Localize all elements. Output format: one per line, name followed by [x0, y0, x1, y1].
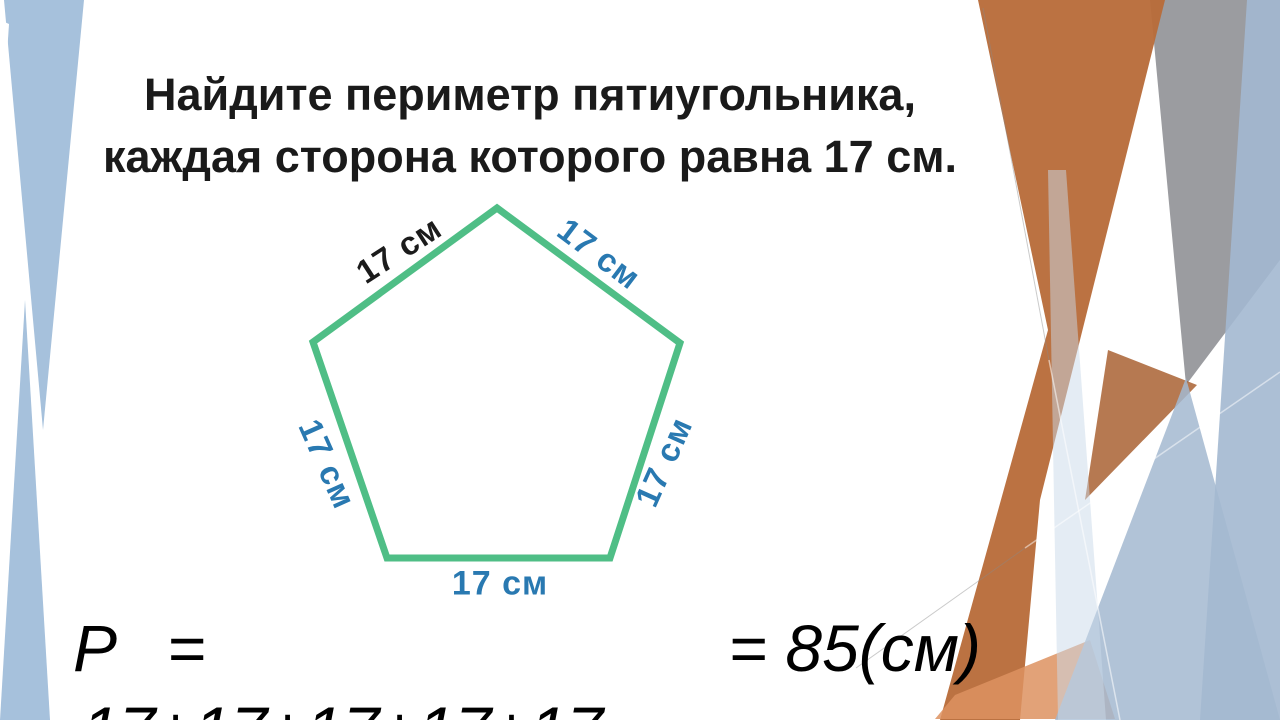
perimeter-result: = 85(см)	[729, 615, 982, 681]
perimeter-expansion: 17+17+17+17+17	[82, 697, 603, 720]
side-label-bottom: 17 см	[452, 565, 548, 604]
formula-row: P= = 85(см)	[73, 615, 981, 681]
perimeter-lhs: P=	[73, 615, 256, 681]
slide-canvas: Найдите периметр пятиугольника, каждая с…	[0, 0, 1280, 720]
